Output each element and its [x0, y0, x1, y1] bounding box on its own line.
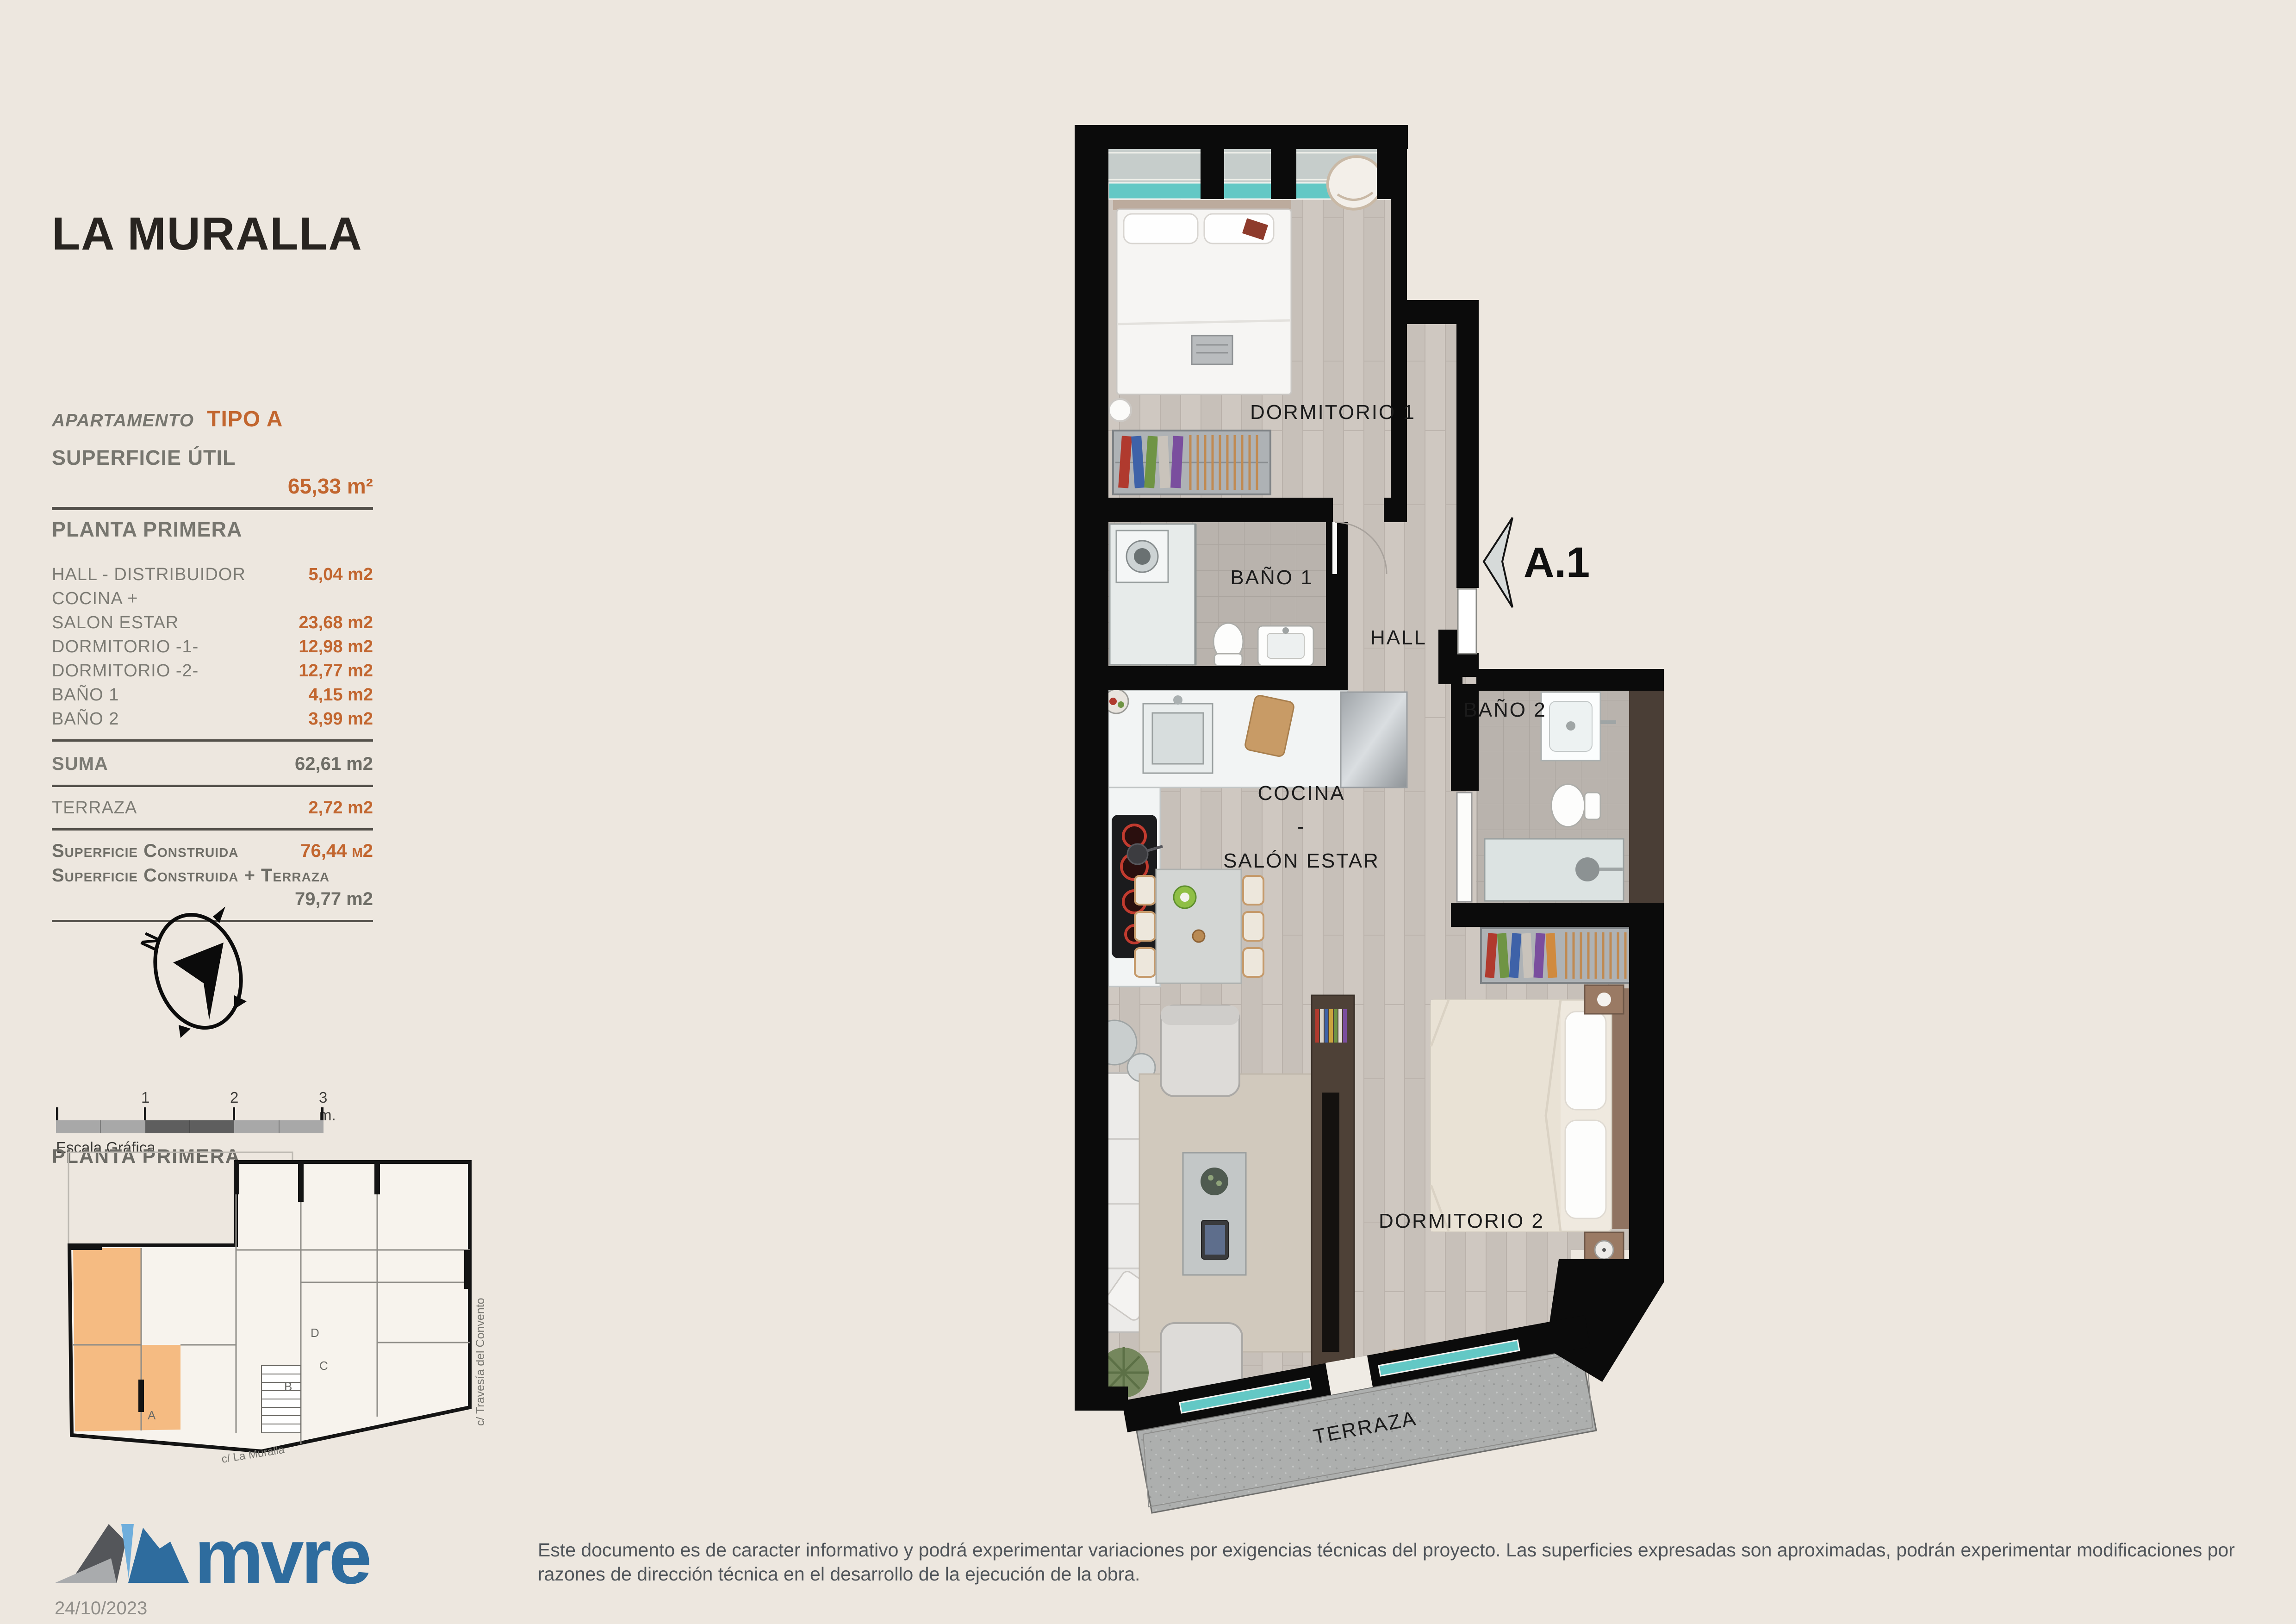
- site-unit-label-b: B: [284, 1380, 292, 1393]
- row-value: 5,04 m2: [309, 565, 373, 585]
- room-label-dormitorio2: DORMITORIO 2: [1379, 1210, 1544, 1232]
- site-plan: A B C D c/ Travesía del Convento c/ La M…: [46, 1125, 514, 1518]
- row-value: 4,15 m2: [309, 685, 373, 705]
- site-stair: [261, 1366, 301, 1433]
- area-row: BAÑO 14,15 m2: [52, 685, 373, 705]
- date: 24/10/2023: [55, 1598, 147, 1619]
- area-row: DORMITORIO -2-12,77 m2: [52, 661, 373, 681]
- pot: [1127, 844, 1148, 864]
- row-label: BAÑO 1: [52, 685, 119, 705]
- area-row: SALON ESTAR23,68 m2: [52, 613, 373, 633]
- room-label-dormitorio1: DORMITORIO 1: [1250, 401, 1416, 424]
- toilet-bano1: [1213, 623, 1243, 666]
- divider: [52, 739, 373, 742]
- washer-bano1: [1116, 531, 1168, 582]
- row-label: COCINA +: [52, 589, 138, 609]
- constructed-terrace-row: Superficie Construida + Terraza: [52, 865, 373, 886]
- dining-table: [1156, 869, 1241, 983]
- page-title: LA MURALLA: [52, 207, 363, 261]
- disclaimer-line2: razones de dirección técnica en el desar…: [538, 1562, 2292, 1586]
- row-value: 3,99 m2: [309, 709, 373, 729]
- shower-bano2: [1485, 839, 1624, 901]
- nightstand-top: [1585, 985, 1624, 1014]
- area-row: BAÑO 23,99 m2: [52, 709, 373, 729]
- row-value: 23,68 m2: [299, 613, 373, 633]
- kitchen-sink: [1152, 713, 1203, 764]
- bed-1: [1113, 200, 1291, 394]
- divider: [52, 785, 373, 787]
- scale-tick-label: 2: [230, 1089, 238, 1106]
- site-unit-label-d: D: [311, 1326, 319, 1340]
- apartment-type: TIPO A: [207, 406, 283, 432]
- floor-plan: DORMITORIO 1 BAÑO 1 HALL BAÑO 2 COCINA -…: [1041, 83, 1699, 1537]
- room-label-hall: HALL: [1370, 626, 1427, 649]
- divider: [52, 507, 373, 510]
- constructed-label: Superficie Construida: [52, 841, 238, 862]
- scale-tick-label: 1: [141, 1089, 149, 1106]
- room-label-bano1: BAÑO 1: [1230, 566, 1313, 589]
- row-label: HALL - DISTRIBUIDOR: [52, 565, 246, 585]
- area-row: DORMITORIO -1-12,98 m2: [52, 637, 373, 657]
- room-label-dash: -: [1297, 815, 1306, 838]
- closet-bedroom1: [1113, 431, 1270, 494]
- entry-label: A.1: [1524, 539, 1590, 586]
- superficie-util-value: 65,33 m²: [52, 474, 373, 499]
- bed-2: [1431, 988, 1630, 1231]
- logo-mountains-icon: [54, 1524, 189, 1583]
- logo-text: mvre: [194, 1518, 369, 1590]
- suma-row: SUMA62,61 m2: [52, 754, 373, 775]
- terraza-label: TERRAZA: [52, 798, 137, 818]
- constructed-row: Superficie Construida76,44 m2: [52, 841, 373, 862]
- apartment-label: APARTAMENTO: [52, 411, 194, 431]
- ceiling-light: [1109, 399, 1131, 421]
- superficie-util-label: SUPERFICIE ÚTIL: [52, 446, 373, 470]
- floor-label: PLANTA PRIMERA: [52, 518, 373, 542]
- logo: mvre: [51, 1518, 384, 1590]
- disclaimer: Este documento es de caracter informativ…: [538, 1538, 2292, 1586]
- suma-value: 62,61 m2: [295, 754, 373, 775]
- area-row: COCINA +: [52, 589, 373, 609]
- room-label-salon: SALÓN ESTAR: [1223, 849, 1380, 872]
- terraza-value: 2,72 m2: [309, 798, 373, 818]
- constructed-value: 76,44 m2: [300, 841, 373, 862]
- door-bano2: [1457, 793, 1472, 902]
- entry-arrow-icon: [1484, 518, 1512, 607]
- wall-brown: [1629, 691, 1664, 903]
- tv-unit: [1312, 995, 1354, 1407]
- row-value: 12,98 m2: [299, 637, 373, 657]
- disclaimer-line1: Este documento es de caracter informativ…: [538, 1538, 2292, 1562]
- room-label-cocina: COCINA: [1257, 782, 1345, 805]
- terraza-row: TERRAZA2,72 m2: [52, 798, 373, 818]
- site-street-right: c/ Travesía del Convento: [474, 1298, 487, 1426]
- constructed-terrace-label: Superficie Construida + Terraza: [52, 865, 330, 886]
- compass-icon: N: [134, 896, 273, 1049]
- dining-set: [1135, 869, 1263, 983]
- row-label: BAÑO 2: [52, 709, 119, 729]
- suma-label: SUMA: [52, 754, 108, 775]
- entry-door: [1458, 589, 1476, 654]
- row-label: DORMITORIO -1-: [52, 637, 199, 657]
- area-row: HALL - DISTRIBUIDOR5,04 m2: [52, 565, 373, 585]
- fridge: [1341, 692, 1407, 787]
- divider: [52, 828, 373, 831]
- row-label: DORMITORIO -2-: [52, 661, 199, 681]
- entry-marker: A.1: [1484, 518, 1590, 607]
- row-value: 12,77 m2: [299, 661, 373, 681]
- apartment-line: APARTAMENTO TIPO A: [52, 406, 373, 432]
- site-unit-label-a: A: [148, 1408, 156, 1422]
- room-label-bano2: BAÑO 2: [1463, 698, 1546, 721]
- surface-info-panel: APARTAMENTO TIPO A SUPERFICIE ÚTIL 65,33…: [52, 406, 373, 922]
- sink-bano1: [1258, 626, 1313, 666]
- room-area-rows: HALL - DISTRIBUIDOR5,04 m2 COCINA + SALO…: [52, 565, 373, 729]
- wardrobe-dormitorio2: [1481, 928, 1645, 983]
- site-unit-label-c: C: [319, 1359, 328, 1373]
- armchair-top: [1161, 1006, 1239, 1096]
- coffee-table: [1183, 1153, 1246, 1275]
- row-label: SALON ESTAR: [52, 613, 179, 633]
